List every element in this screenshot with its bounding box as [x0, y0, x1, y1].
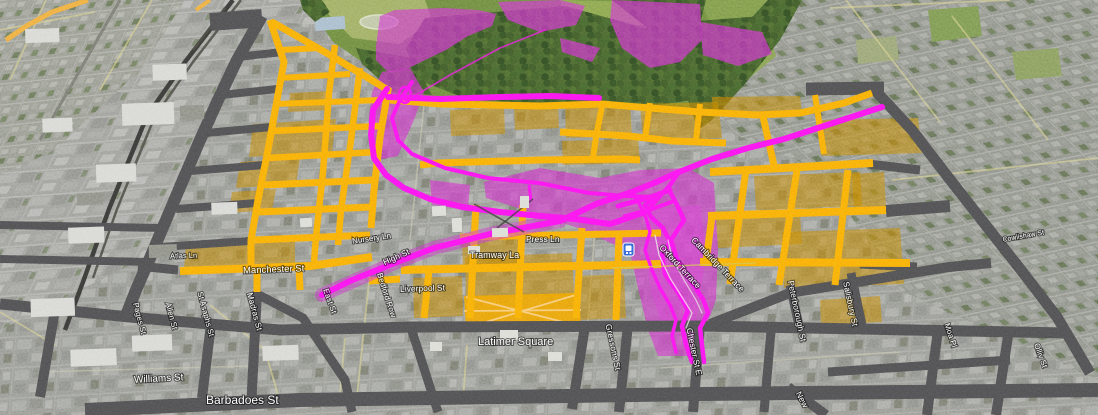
svg-text:Liverpool St: Liverpool St: [400, 282, 446, 294]
svg-text:Atlas Ln: Atlas Ln: [170, 251, 197, 261]
svg-text:Manchester St: Manchester St: [243, 263, 305, 276]
svg-text:Latimer Square: Latimer Square: [478, 336, 553, 348]
svg-text:Press Ln: Press Ln: [526, 234, 560, 244]
svg-text:Barbadoes St: Barbadoes St: [206, 393, 279, 407]
svg-text:Tramway La: Tramway La: [470, 250, 519, 260]
